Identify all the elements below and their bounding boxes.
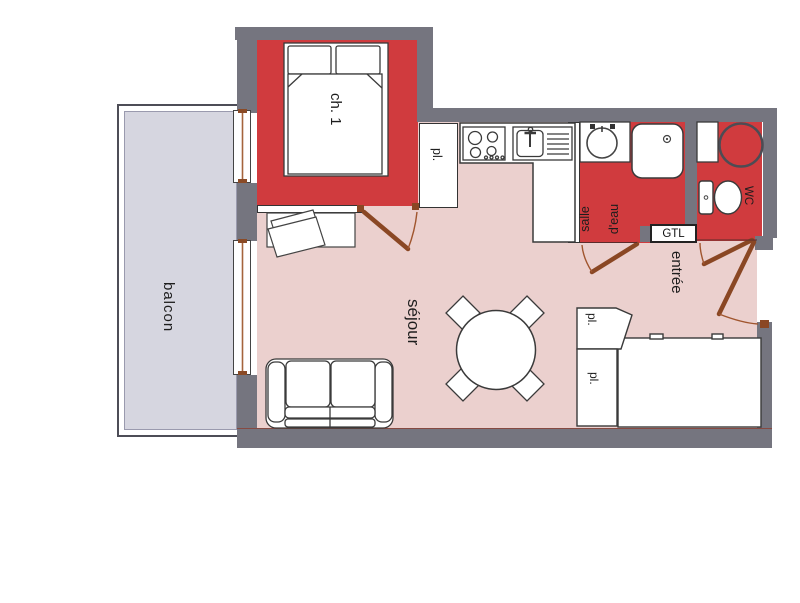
wc-label: WC	[742, 186, 754, 205]
bathroom-label-line2: d'eau	[607, 204, 621, 234]
single-bed	[618, 334, 761, 427]
balcony-label: balcon	[160, 282, 177, 332]
fixtures-layer	[0, 0, 800, 603]
bedroom-label: ch. 1	[327, 93, 344, 126]
closet-entry-lower-label: pl.	[587, 372, 601, 385]
daybed	[267, 210, 355, 257]
toilet	[699, 181, 742, 214]
living-room-label: séjour	[403, 299, 423, 345]
floor-plan: GTL	[0, 0, 800, 603]
dining-table	[457, 311, 536, 390]
water-heater	[720, 124, 763, 167]
gtl-label: GTL	[662, 228, 684, 240]
gtl-box: GTL	[650, 224, 697, 243]
wc-cabinet	[697, 122, 718, 162]
washbasin	[580, 122, 630, 162]
bathroom-label: salle d'eau	[564, 196, 636, 256]
shower	[632, 124, 683, 178]
sofa	[266, 359, 393, 428]
window-sashes	[238, 109, 247, 375]
entry-label: entrée	[668, 251, 685, 294]
closet-entry-lower	[577, 349, 617, 426]
closet-kitchen-label: pl.	[430, 148, 444, 161]
closet-entry-upper-label: pl.	[585, 313, 599, 326]
bathroom-label-line1: salle	[578, 206, 592, 232]
bedroom-door	[357, 203, 419, 249]
